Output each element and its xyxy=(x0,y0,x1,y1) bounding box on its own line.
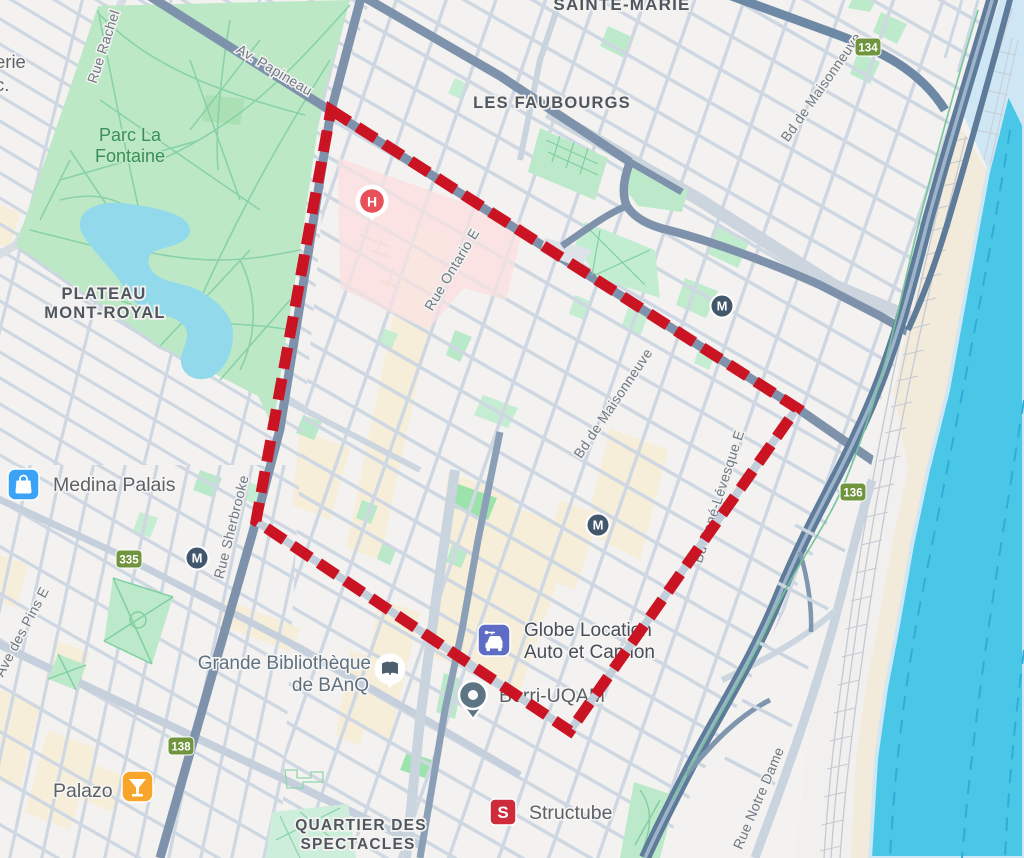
svg-text:138: 138 xyxy=(171,742,191,754)
svg-text:c.: c. xyxy=(0,74,9,95)
svg-text:136: 136 xyxy=(843,488,862,500)
svg-text:134: 134 xyxy=(858,43,878,55)
svg-text:Fontaine: Fontaine xyxy=(95,146,165,166)
svg-text:SAINTE-MARIE: SAINTE-MARIE xyxy=(553,0,690,14)
svg-text:Palazo: Palazo xyxy=(53,780,113,802)
svg-text:PLATEAU: PLATEAU xyxy=(61,285,146,303)
svg-text:SPECTACLES: SPECTACLES xyxy=(300,836,415,853)
svg-text:de BAnQ: de BAnQ xyxy=(292,675,369,696)
svg-text:335: 335 xyxy=(119,555,139,567)
svg-text:Medina Palais: Medina Palais xyxy=(53,474,176,496)
svg-text:M: M xyxy=(192,551,203,566)
svg-text:H: H xyxy=(367,194,377,210)
svg-text:Structube: Structube xyxy=(529,802,612,824)
svg-text:LES FAUBOURGS: LES FAUBOURGS xyxy=(473,94,631,112)
svg-text:erie: erie xyxy=(0,51,26,72)
svg-text:M: M xyxy=(717,299,728,314)
svg-text:M: M xyxy=(593,518,604,533)
svg-text:S: S xyxy=(497,803,508,822)
svg-text:Parc La: Parc La xyxy=(99,125,162,145)
svg-text:QUARTIER DES: QUARTIER DES xyxy=(295,817,427,834)
svg-text:MONT-ROYAL: MONT-ROYAL xyxy=(44,304,165,322)
svg-text:Grande Bibliothèque: Grande Bibliothèque xyxy=(198,653,371,674)
